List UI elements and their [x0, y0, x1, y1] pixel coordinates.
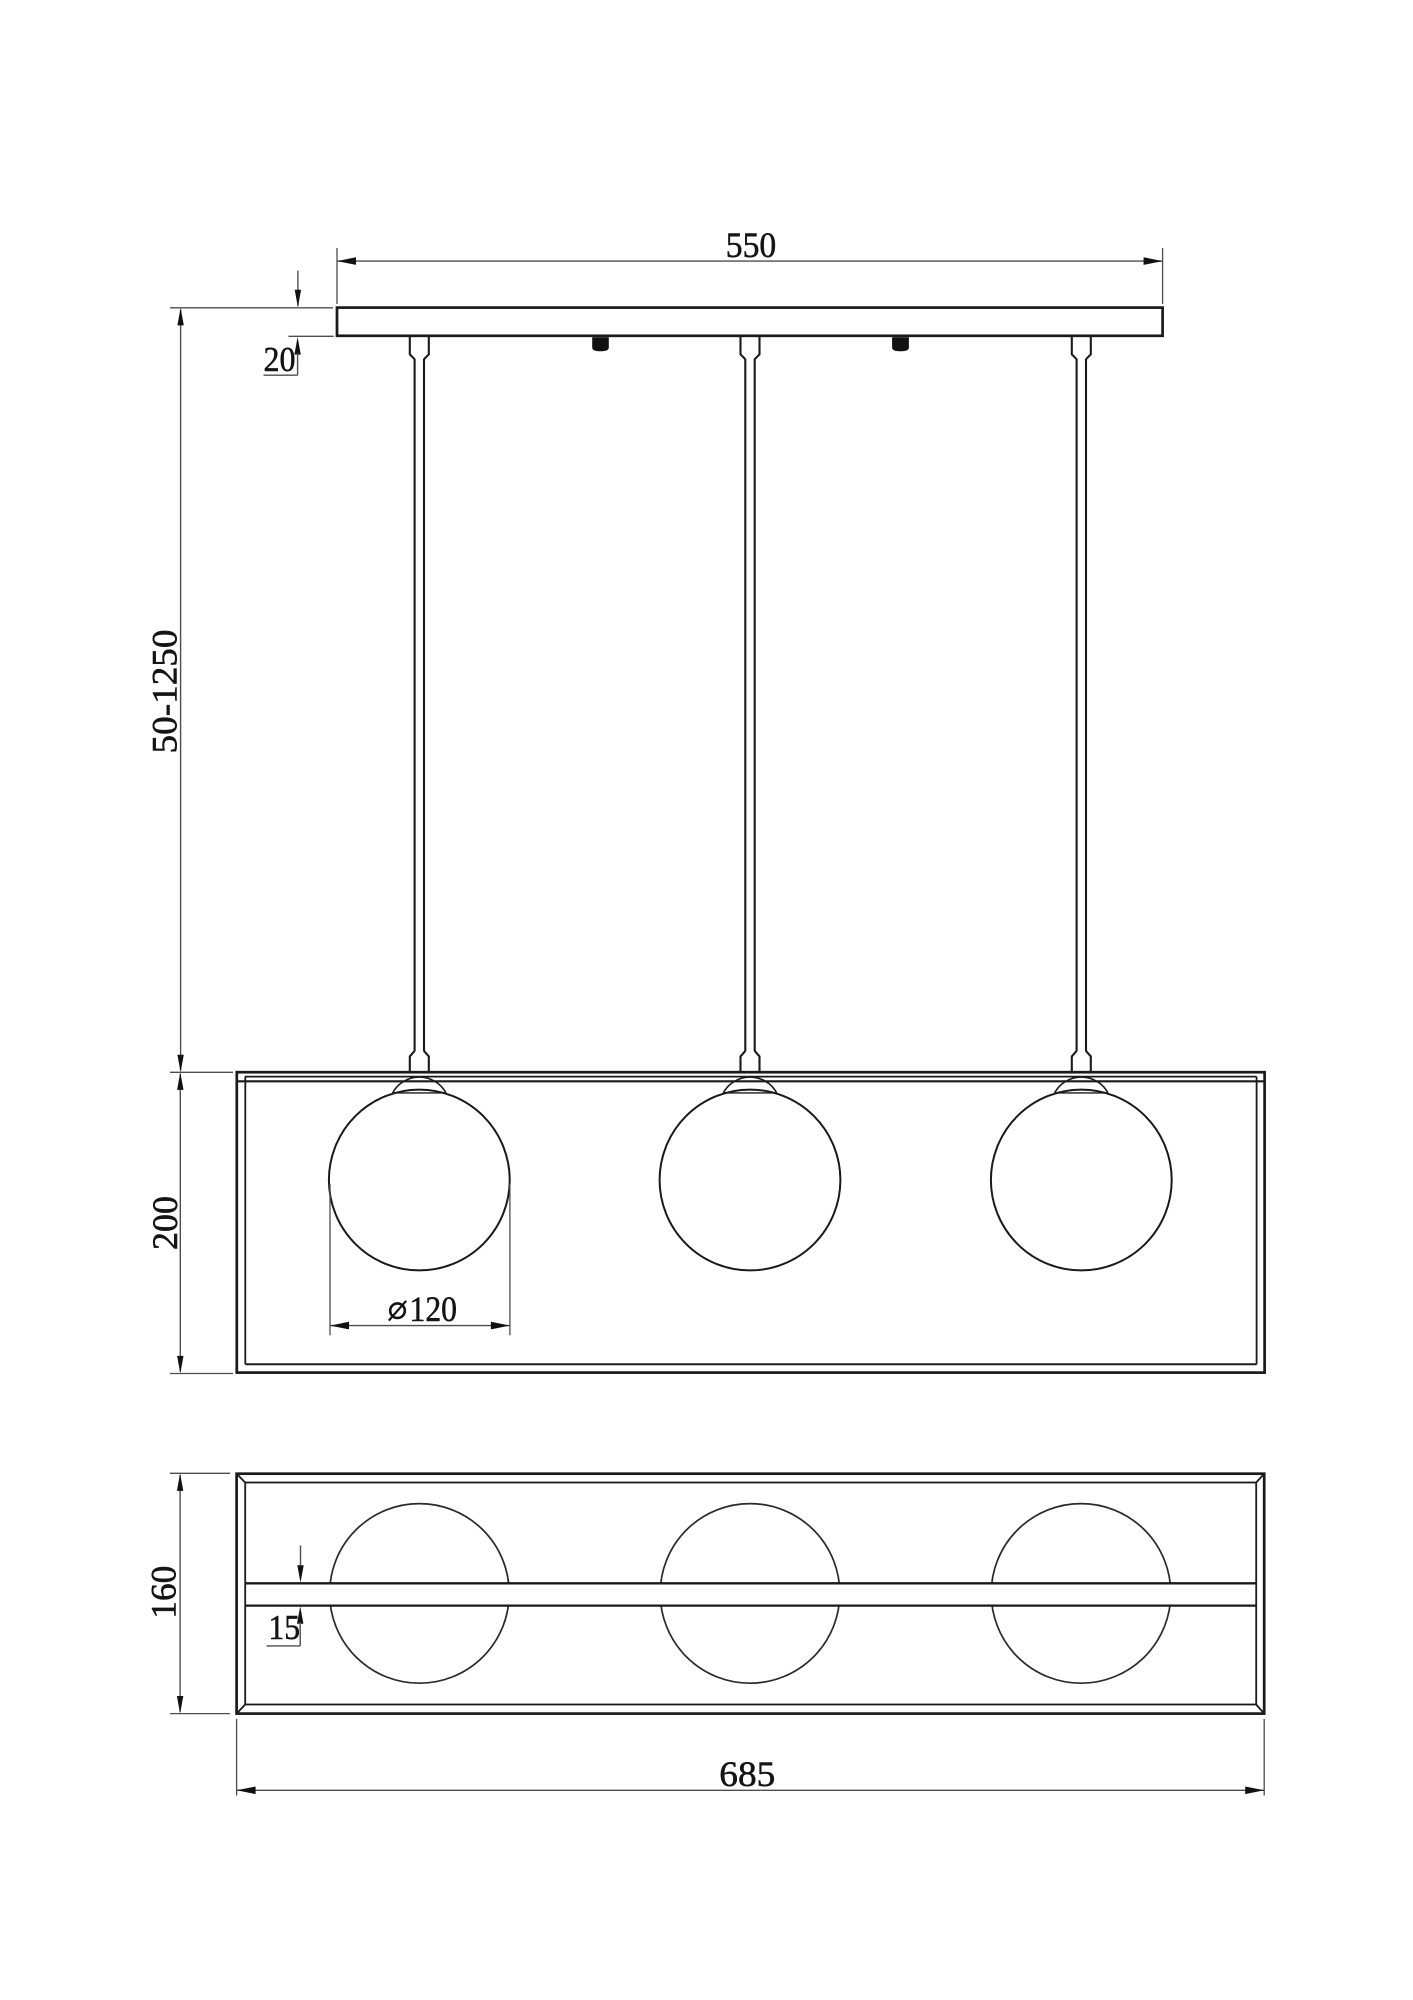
svg-text:550: 550: [726, 225, 777, 265]
svg-text:20: 20: [264, 340, 296, 379]
svg-text:120: 120: [410, 1289, 458, 1329]
svg-text:685: 685: [719, 1754, 775, 1794]
svg-text:50-1250: 50-1250: [145, 630, 185, 754]
svg-text:200: 200: [145, 1196, 185, 1250]
svg-text:15: 15: [269, 1608, 301, 1647]
svg-text:160: 160: [143, 1566, 183, 1619]
